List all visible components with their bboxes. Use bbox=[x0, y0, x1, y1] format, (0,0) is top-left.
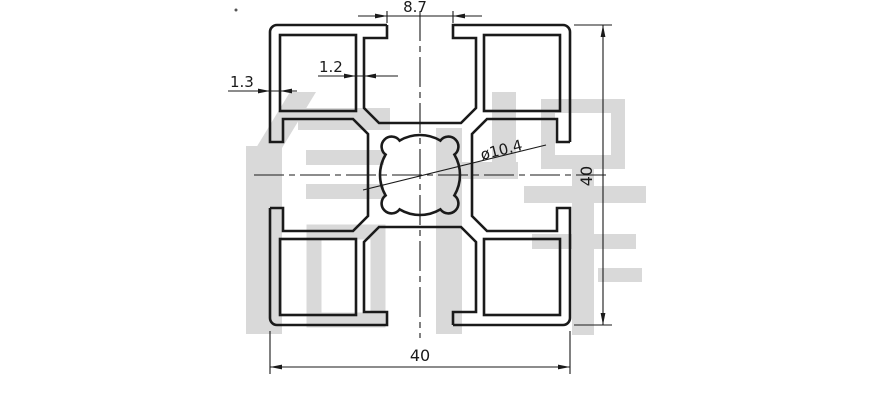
watermark-stroke bbox=[314, 232, 378, 320]
arrowhead bbox=[375, 14, 387, 19]
watermark-stroke bbox=[532, 234, 636, 249]
arrowhead bbox=[364, 74, 376, 79]
watermark-stroke bbox=[524, 186, 646, 203]
arrowhead bbox=[344, 74, 356, 79]
dim-inner-wall-label: 1.2 bbox=[319, 58, 343, 76]
arrowhead bbox=[558, 365, 570, 370]
watermark-stroke bbox=[436, 128, 462, 334]
arrowhead bbox=[280, 89, 292, 94]
arrowhead bbox=[270, 365, 282, 370]
dim-slot-opening-label: 8.7 bbox=[403, 0, 427, 16]
watermark-stroke bbox=[306, 184, 384, 199]
arrowhead bbox=[453, 14, 465, 19]
watermark-stroke bbox=[246, 146, 282, 334]
arrowhead bbox=[601, 313, 606, 325]
technical-drawing-canvas: 8.7 1.2 1.3 ø10.4 40 40 bbox=[0, 0, 880, 420]
dim-height-label: 40 bbox=[577, 166, 596, 186]
watermark-stroke bbox=[306, 150, 384, 165]
arrowhead bbox=[601, 25, 606, 37]
watermark-stroke bbox=[598, 268, 642, 282]
watermark-stroke bbox=[436, 162, 518, 179]
profile-slot-and-corner bbox=[364, 25, 570, 142]
dim-width-label: 40 bbox=[410, 346, 430, 365]
speck bbox=[235, 9, 238, 12]
extrusion-profile-drawing: 8.7 1.2 1.3 ø10.4 40 40 bbox=[0, 0, 880, 420]
watermark-stroke bbox=[548, 106, 618, 162]
arrowhead bbox=[258, 89, 270, 94]
dimension-labels: 8.7 1.2 1.3 ø10.4 40 40 bbox=[230, 0, 596, 365]
dim-outer-wall-label: 1.3 bbox=[230, 73, 254, 91]
chamber-cavity-bottom-right bbox=[484, 239, 560, 315]
